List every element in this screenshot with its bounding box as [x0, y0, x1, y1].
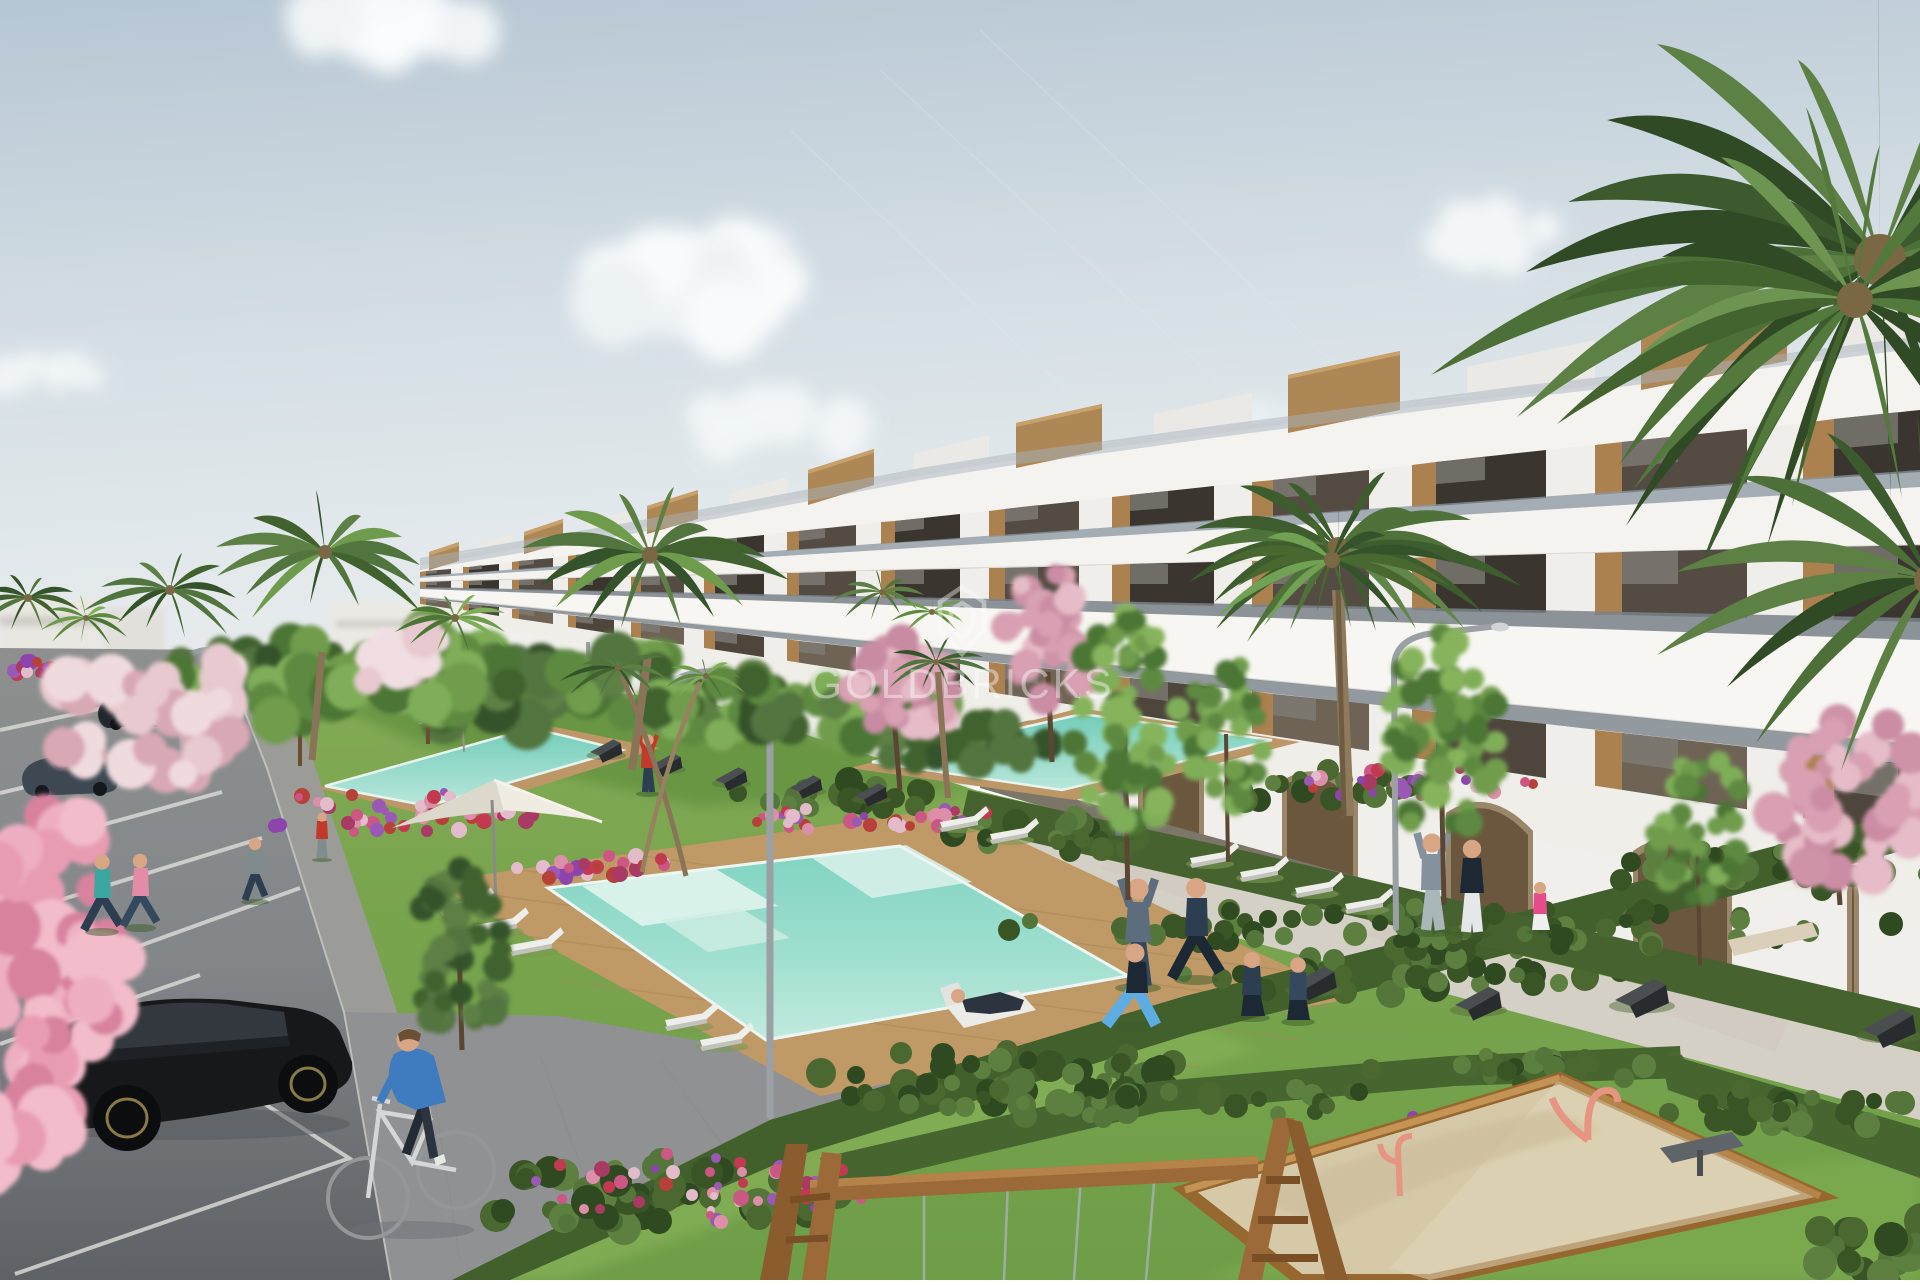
- svg-text:GOLDBRICKS: GOLDBRICKS: [809, 660, 1114, 707]
